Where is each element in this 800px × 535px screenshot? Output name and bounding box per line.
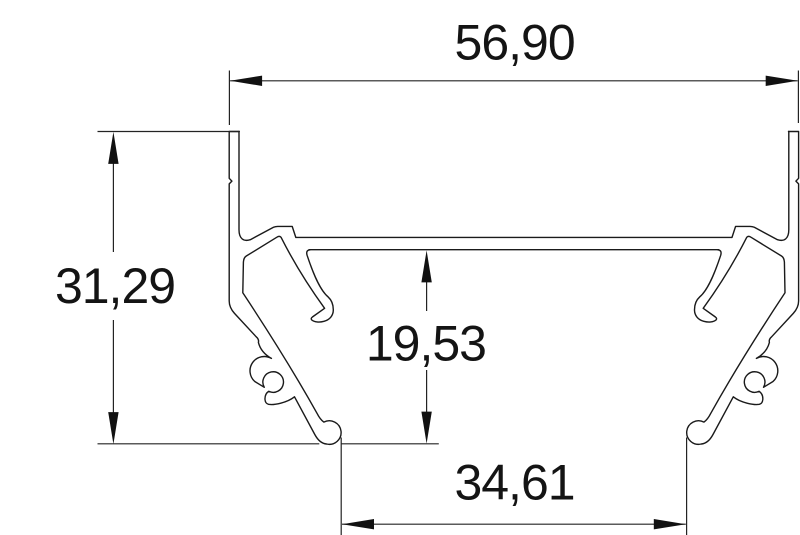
- svg-text:31,29: 31,29: [55, 258, 175, 314]
- svg-text:19,53: 19,53: [366, 316, 486, 372]
- svg-text:34,61: 34,61: [454, 455, 574, 511]
- svg-text:56,90: 56,90: [455, 14, 575, 70]
